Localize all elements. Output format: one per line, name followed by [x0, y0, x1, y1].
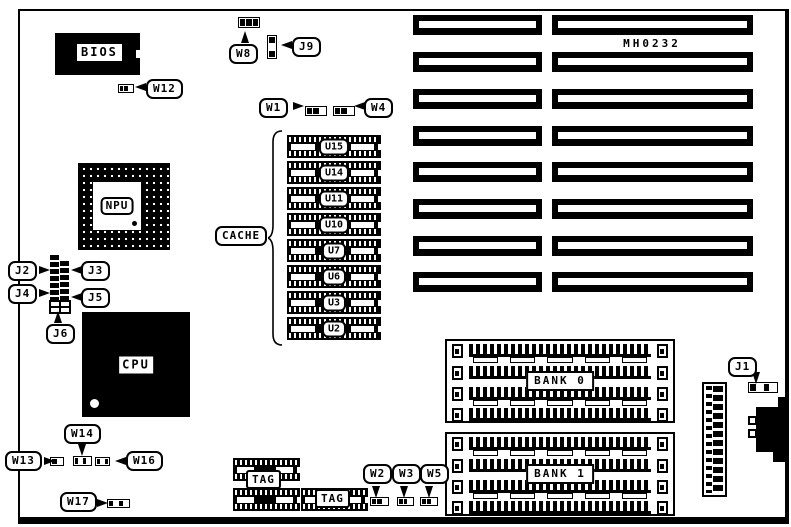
jumper-w12 — [118, 84, 134, 93]
callout-w5: W5 — [420, 464, 449, 484]
callout-arrow-w14 — [78, 444, 86, 456]
callout-w14: W14 — [64, 424, 101, 444]
simm-latch-right — [657, 366, 668, 380]
jumper-pin — [383, 499, 387, 504]
chip-pins-bottom — [235, 504, 298, 509]
chip-body-bar — [351, 222, 375, 228]
simm-chip — [547, 400, 572, 406]
npu-pin1-dot — [132, 221, 137, 226]
chip-body-bar — [291, 326, 315, 332]
simm-chip — [622, 400, 647, 406]
jumper-pin — [119, 501, 123, 506]
tag-label-right: TAG — [315, 489, 350, 508]
slot-opening — [419, 168, 536, 175]
chip-body-bar — [351, 144, 375, 150]
simm-contact-row — [469, 408, 651, 421]
jumper-pin — [269, 37, 275, 43]
expansion-slot-left-2 — [413, 52, 542, 72]
expansion-slot-left-3 — [413, 89, 542, 109]
jumper-pin — [764, 384, 770, 391]
simm-chip-row — [473, 400, 647, 406]
jumper-w5 — [420, 497, 438, 506]
simm-chip — [622, 450, 647, 456]
slot-opening — [558, 58, 747, 65]
cpu-chip: CPU — [82, 312, 190, 417]
jumper-pin — [58, 459, 63, 464]
tag-label-left: TAG — [246, 470, 281, 489]
cache-chip-u6: U6 — [287, 265, 381, 288]
callout-j5: J5 — [81, 288, 110, 308]
simm-contact-row — [469, 344, 651, 357]
tag-chip-2 — [233, 488, 300, 511]
chip-body-bar — [291, 222, 315, 228]
callout-w13: W13 — [5, 451, 42, 471]
callout-arrow-w16 — [115, 457, 126, 465]
jumper-pin — [75, 458, 78, 464]
jumper-pin — [79, 458, 82, 464]
jumper-pin — [427, 499, 431, 504]
chip-body-bar — [351, 170, 375, 176]
callout-j1: J1 — [728, 357, 757, 377]
simm-chip — [585, 493, 610, 499]
callout-j6: J6 — [46, 324, 75, 344]
jumper-pin — [253, 19, 258, 26]
chip-body-bar — [276, 497, 293, 503]
chip-body-bar — [237, 497, 254, 503]
jumper-pin — [335, 108, 340, 114]
callout-arrow-w13 — [44, 457, 55, 465]
slot-opening — [419, 205, 536, 212]
simm-chip — [622, 357, 647, 363]
simm-chip — [547, 357, 572, 363]
callout-arrow-j6 — [54, 311, 62, 323]
simm-chip — [547, 493, 572, 499]
chip-body-bar — [351, 274, 375, 280]
jumper-w14 — [73, 456, 92, 466]
memory-bank-1: BANK 1 — [445, 432, 675, 516]
jumper-pin — [97, 459, 100, 464]
simm-chip-row — [473, 450, 647, 456]
slot-opening — [419, 21, 536, 28]
jumper-pin — [129, 86, 132, 91]
jumper-w17 — [107, 499, 130, 508]
simm-contact-row — [469, 437, 651, 450]
jumper-w3 — [397, 497, 414, 506]
jumper-pin — [320, 108, 325, 114]
slot-opening — [558, 132, 747, 139]
jumper-pin — [269, 44, 275, 50]
keyboard-connector-tab — [773, 452, 785, 462]
chip-body-bar — [291, 144, 315, 150]
chip-body-bar — [351, 248, 375, 254]
jumper-pin — [399, 499, 403, 504]
simm-latch-right — [657, 387, 668, 401]
jumper-pin — [124, 501, 128, 506]
slot-opening — [419, 242, 536, 249]
simm-latch-right — [657, 344, 668, 358]
keyboard-connector — [756, 407, 785, 452]
simm-chip-row — [473, 357, 647, 363]
chip-designator: U6 — [322, 268, 346, 285]
cache-chip-u2: U2 — [287, 317, 381, 340]
bios-chip: BIOS — [55, 33, 140, 75]
jumper-pin — [770, 384, 776, 391]
chip-designator: U10 — [319, 216, 349, 233]
jumper-pin — [757, 384, 763, 391]
jumper-pin — [750, 384, 756, 391]
slot-opening — [419, 58, 536, 65]
simm-chip — [510, 493, 535, 499]
jumper-w2 — [370, 497, 389, 506]
callout-arrow-w8 — [241, 31, 249, 43]
expansion-slot-right-2 — [552, 52, 753, 72]
slot-opening — [558, 205, 747, 212]
j6-pin — [51, 302, 59, 306]
part-number: MH0232 — [592, 37, 712, 51]
j6-pin — [61, 302, 69, 306]
callout-arrow-w17 — [97, 499, 108, 507]
bios-chip-notch — [136, 50, 141, 58]
jumper-pin — [114, 501, 118, 506]
npu-label: NPU — [101, 197, 134, 215]
jumper-w1 — [305, 106, 327, 116]
j6-pin — [61, 308, 69, 312]
jumper-pin — [377, 499, 381, 504]
simm-chip — [585, 357, 610, 363]
callout-j3: J3 — [81, 261, 110, 281]
memory-bank-0: BANK 0 — [445, 339, 675, 423]
cache-chip-u15: U15 — [287, 135, 381, 158]
callout-j4: J4 — [8, 284, 37, 304]
jumper-w8 — [238, 17, 260, 28]
cache-chip-u14: U14 — [287, 161, 381, 184]
simm-latch-left — [452, 459, 463, 473]
cache-chip-u7: U7 — [287, 239, 381, 262]
cache-chip-u10: U10 — [287, 213, 381, 236]
simm-latch-left — [452, 408, 463, 422]
slot-opening — [558, 95, 747, 102]
jumper-pin — [124, 86, 127, 91]
callout-w4: W4 — [364, 98, 393, 118]
jumper-pin — [307, 108, 312, 114]
callout-arrow-j4 — [39, 289, 50, 297]
callout-w12: W12 — [146, 79, 183, 99]
simm-latch-left — [452, 366, 463, 380]
chip-designator: U2 — [322, 320, 346, 337]
callout-w8: W8 — [229, 44, 258, 64]
jumper-pin — [341, 108, 346, 114]
simm-latch-left — [452, 387, 463, 401]
slot-opening — [558, 242, 747, 249]
slot-opening — [419, 132, 536, 139]
keyboard-port — [748, 416, 757, 425]
chip-designator: U11 — [319, 190, 349, 207]
power-connector-pins — [706, 386, 712, 493]
jumper-pin — [120, 86, 123, 91]
cache-chip-u3: U3 — [287, 291, 381, 314]
jumper-pin — [246, 19, 251, 26]
cpu-label: CPU — [119, 356, 153, 373]
simm-latch-left — [452, 437, 463, 451]
slot-opening — [558, 168, 747, 175]
expansion-slot-right-4 — [552, 126, 753, 146]
simm-latch-left — [452, 344, 463, 358]
jumper-pin — [105, 459, 108, 464]
simm-chip-row — [473, 493, 647, 499]
expansion-slot-right-7 — [552, 236, 753, 256]
expansion-slot-left-6 — [413, 199, 542, 219]
chip-body-bar — [291, 170, 315, 176]
chip-body-bar — [351, 326, 375, 332]
chip-designator: U15 — [319, 138, 349, 155]
simm-latch-left — [452, 480, 463, 494]
cpu-pin1-dot — [90, 399, 99, 408]
callout-w1: W1 — [259, 98, 288, 118]
expansion-slot-left-7 — [413, 236, 542, 256]
slot-opening — [419, 95, 536, 102]
chip-body-bar — [291, 248, 315, 254]
jumper-pin — [240, 19, 245, 26]
chip-body-bar — [351, 196, 375, 202]
callout-j9: J9 — [292, 37, 321, 57]
simm-latch-left — [452, 501, 463, 515]
chip-designator: U7 — [322, 242, 346, 259]
jumper-pin — [372, 499, 376, 504]
simm-latch-right — [657, 501, 668, 515]
jumper-w4 — [333, 106, 355, 116]
keyboard-port — [748, 429, 757, 438]
callout-arrow-w1 — [293, 102, 304, 110]
simm-contact-row — [469, 501, 651, 514]
jumper-pin — [313, 108, 318, 114]
simm-chip — [473, 450, 498, 456]
expansion-slot-right-5 — [552, 162, 753, 182]
callout-arrow-w5 — [425, 486, 433, 498]
callout-arrow-j9 — [281, 41, 292, 49]
cache-callout: CACHE — [215, 226, 267, 246]
simm-chip — [473, 400, 498, 406]
jumper-pin — [422, 499, 426, 504]
expansion-slot-right-8 — [552, 272, 753, 292]
callout-arrow-w2 — [372, 486, 380, 498]
jumper-j9 — [267, 35, 277, 59]
chip-pins-top — [235, 460, 298, 465]
jumper-pin — [269, 51, 275, 57]
jumper-pin — [87, 458, 90, 464]
chip-designator: U3 — [322, 294, 346, 311]
cache-chip-u11: U11 — [287, 187, 381, 210]
simm-latch-right — [657, 437, 668, 451]
power-connector-pins — [713, 386, 723, 493]
chip-body-bar — [351, 300, 375, 306]
bank-1-label: BANK 1 — [526, 464, 594, 484]
chip-pins-top — [235, 490, 298, 495]
chip-body-bar — [291, 300, 315, 306]
simm-chip — [622, 493, 647, 499]
expansion-slot-left-8 — [413, 272, 542, 292]
jumper-pin — [432, 499, 436, 504]
expansion-slot-left-4 — [413, 126, 542, 146]
simm-chip — [510, 450, 535, 456]
chip-designator: U14 — [319, 164, 349, 181]
expansion-slot-left-1 — [413, 15, 542, 35]
jumper-pin — [408, 499, 412, 504]
callout-w2: W2 — [363, 464, 392, 484]
simm-latch-right — [657, 480, 668, 494]
slot-opening — [419, 278, 536, 285]
jumper-pin — [348, 108, 353, 114]
simm-chip — [585, 450, 610, 456]
expansion-slot-right-1 — [552, 15, 753, 35]
chip-body-bar — [291, 274, 315, 280]
callout-j2: J2 — [8, 261, 37, 281]
jumper-w16 — [95, 457, 110, 466]
simm-latch-right — [657, 459, 668, 473]
simm-latch-right — [657, 408, 668, 422]
simm-chip — [510, 357, 535, 363]
callout-arrow-j2 — [39, 266, 50, 274]
cache-brace — [268, 130, 284, 346]
jumper-pin — [404, 499, 408, 504]
bank-0-label: BANK 0 — [526, 371, 594, 391]
simm-chip — [510, 400, 535, 406]
motherboard-diagram: BIOS NPU CPU CACHE TAG TAG BANK 0 BANK 1… — [0, 0, 791, 527]
callout-w3: W3 — [392, 464, 421, 484]
npu-socket-center: NPU — [93, 182, 141, 230]
callout-w17: W17 — [60, 492, 97, 512]
expansion-slot-left-5 — [413, 162, 542, 182]
simm-chip — [473, 357, 498, 363]
jumper-pin — [83, 458, 86, 464]
simm-chip — [473, 493, 498, 499]
callout-arrow-w3 — [400, 486, 408, 498]
slot-opening — [558, 278, 747, 285]
bios-label: BIOS — [77, 44, 122, 61]
power-connector — [702, 382, 727, 497]
expansion-slot-right-3 — [552, 89, 753, 109]
chip-body-bar — [291, 196, 315, 202]
simm-chip — [547, 450, 572, 456]
expansion-slot-right-6 — [552, 199, 753, 219]
callout-arrow-w12 — [135, 83, 146, 91]
callout-w16: W16 — [126, 451, 163, 471]
slot-opening — [558, 21, 747, 28]
simm-chip — [585, 400, 610, 406]
jumper-pin — [109, 501, 113, 506]
npu-socket: NPU — [78, 163, 170, 250]
jumper-pin — [101, 459, 104, 464]
keyboard-connector-tab — [778, 397, 785, 407]
